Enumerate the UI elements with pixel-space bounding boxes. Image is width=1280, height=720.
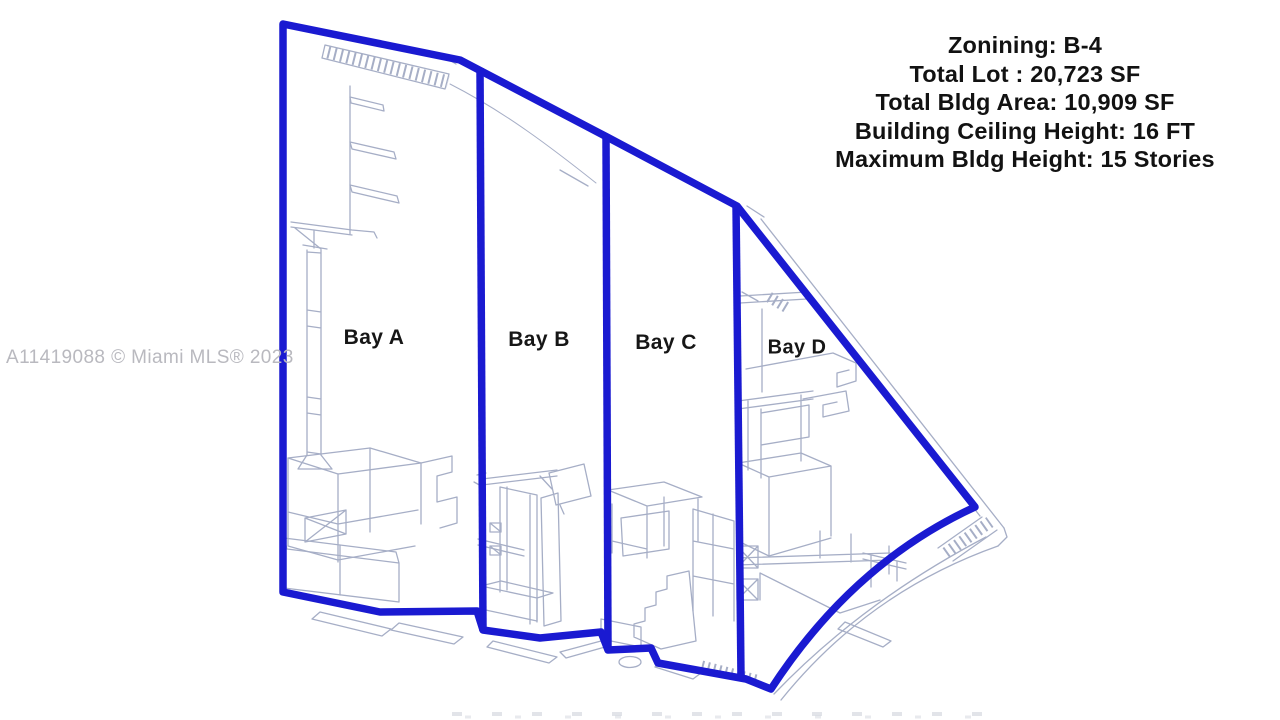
info-line-total-lot: Total Lot : 20,723 SF — [780, 60, 1270, 89]
wall-band — [744, 206, 1004, 528]
info-line-zoning: Zonining: B-4 — [780, 31, 1270, 60]
stairs-c — [634, 571, 696, 649]
cabinets-b — [474, 470, 557, 489]
divider-bay-c-d — [736, 204, 741, 677]
column-a — [303, 245, 327, 455]
bay-c-label: Bay C — [635, 331, 697, 355]
divider-bay-b-c — [606, 136, 608, 650]
bay-b-label: Bay B — [508, 328, 570, 352]
bay-d-label: Bay D — [768, 337, 827, 360]
mls-watermark: A11419088 © Miami MLS® 2023 — [6, 347, 294, 369]
bay-a-label: Bay A — [344, 326, 405, 350]
floor-plan-page: A11419088 © Miami MLS® 2023 Zonining: B-… — [0, 0, 1280, 720]
info-line-ceiling: Building Ceiling Height: 16 FT — [780, 117, 1270, 146]
divider-bay-a-b — [480, 68, 483, 631]
info-line-max-height: Maximum Bldg Height: 15 Stories — [780, 145, 1270, 174]
info-line-bldg-area: Total Bldg Area: 10,909 SF — [780, 88, 1270, 117]
zoning-info-panel: Zonining: B-4 Total Lot : 20,723 SF Tota… — [780, 31, 1270, 174]
